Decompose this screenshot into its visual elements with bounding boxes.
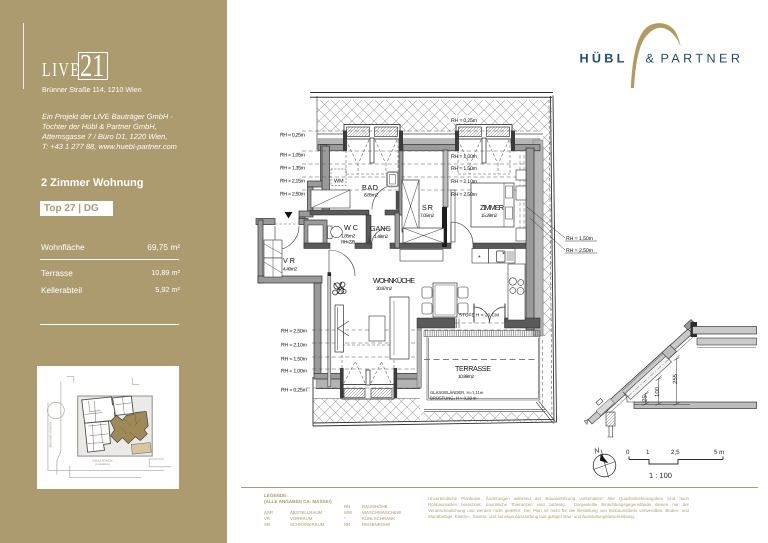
svg-text:15.29m2: 15.29m2 bbox=[481, 213, 497, 219]
svg-text:VR: VR bbox=[283, 256, 295, 265]
svg-text:RH = 1,50m: RH = 1,50m bbox=[451, 166, 477, 172]
svg-text:BRÜSTUNG, H = 0,38 m: BRÜSTUNG, H = 0,38 m bbox=[430, 396, 477, 401]
svg-text:(FUSSWEG): (FUSSWEG) bbox=[95, 463, 109, 466]
svg-text:RH = 1,35m: RH = 1,35m bbox=[280, 166, 305, 172]
svg-text:RH = 0,25m: RH = 0,25m bbox=[280, 133, 305, 139]
svg-text:RH = 1,00m: RH = 1,00m bbox=[451, 154, 477, 160]
svg-text:RH = 2,50m: RH = 2,50m bbox=[451, 192, 477, 198]
svg-text:GLASGELÄNDER, H=1,11m: GLASGELÄNDER, H=1,11m bbox=[430, 390, 484, 395]
svg-text:RH = 2,10m: RH = 2,10m bbox=[281, 343, 307, 349]
svg-text:SR: SR bbox=[422, 203, 433, 212]
svg-text:ZIMMER: ZIMMER bbox=[480, 203, 504, 212]
svg-text:0: 0 bbox=[626, 449, 630, 456]
svg-text:RH = 2,10m: RH = 2,10m bbox=[451, 179, 477, 185]
svg-text:25: 25 bbox=[642, 395, 649, 402]
svg-text:1.48m2: 1.48m2 bbox=[374, 234, 388, 240]
svg-text:TERRASSE: TERRASSE bbox=[455, 364, 491, 373]
svg-text:*: * bbox=[478, 255, 481, 262]
svg-text:N: N bbox=[593, 445, 601, 455]
svg-text:RH = 2,15m: RH = 2,15m bbox=[280, 179, 305, 185]
svg-text:WOHNKÜCHE: WOHNKÜCHE bbox=[373, 276, 415, 285]
svg-text:BAD: BAD bbox=[362, 183, 378, 192]
svg-text:RH = 0,25m: RH = 0,25m bbox=[281, 388, 307, 394]
svg-text:255: 255 bbox=[672, 373, 679, 384]
svg-text:PARTNER: PARTNER bbox=[661, 52, 744, 66]
svg-text:30.87m2: 30.87m2 bbox=[376, 286, 392, 292]
svg-text:RH = 0,25m: RH = 0,25m bbox=[451, 118, 477, 124]
svg-text:RH = 1,05m: RH = 1,05m bbox=[280, 153, 305, 159]
svg-text:HÜBL: HÜBL bbox=[580, 52, 628, 66]
svg-text:8.85m2: 8.85m2 bbox=[364, 193, 378, 199]
svg-text:10.89m2: 10.89m2 bbox=[458, 374, 474, 380]
svg-text:RH = 2,50m: RH = 2,50m bbox=[280, 192, 305, 198]
svg-text:1: 1 bbox=[646, 449, 650, 456]
svg-text:1.85m2: 1.85m2 bbox=[341, 234, 355, 240]
svg-text:&: & bbox=[646, 52, 655, 66]
svg-text:WC: WC bbox=[344, 223, 358, 232]
svg-text:RH = 2,50m: RH = 2,50m bbox=[281, 329, 307, 335]
svg-text:100: 100 bbox=[654, 386, 661, 397]
svg-text:5 m: 5 m bbox=[714, 449, 724, 456]
svg-text:RH = 1,00m: RH = 1,00m bbox=[281, 369, 307, 375]
svg-text:7.05m2: 7.05m2 bbox=[420, 213, 434, 219]
svg-text:RH = 1,50m: RH = 1,50m bbox=[281, 357, 307, 363]
svg-text:4.40m2: 4.40m2 bbox=[283, 267, 297, 273]
svg-text:BRÜNNER STRASSE: BRÜNNER STRASSE bbox=[48, 421, 52, 447]
svg-text:RH=228: RH=228 bbox=[341, 240, 355, 246]
svg-text:WM: WM bbox=[334, 179, 344, 185]
svg-text:2,5: 2,5 bbox=[671, 449, 680, 456]
svg-text:STUFE H = 20 CM: STUFE H = 20 CM bbox=[459, 313, 499, 318]
svg-text:GANG: GANG bbox=[370, 224, 391, 233]
svg-text:1 : 100: 1 : 100 bbox=[649, 471, 672, 480]
